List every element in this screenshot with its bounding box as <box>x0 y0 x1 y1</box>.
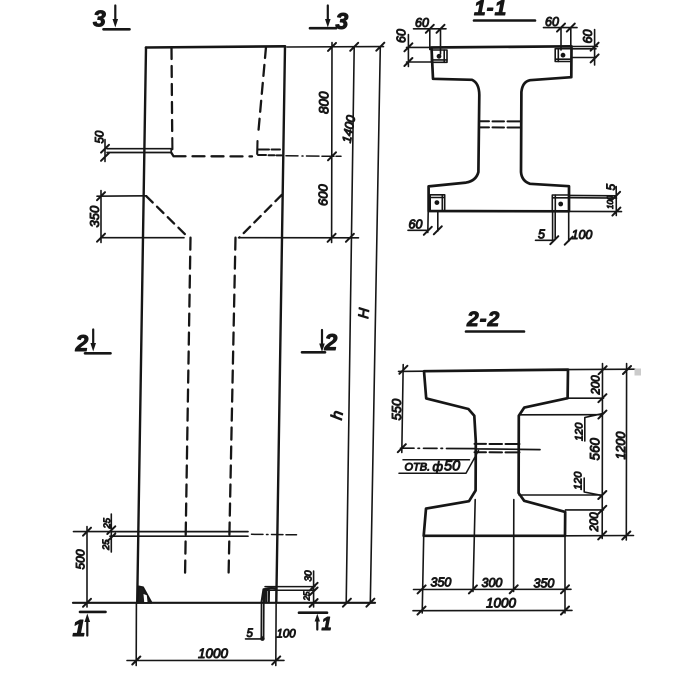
svg-text:30: 30 <box>304 570 315 582</box>
svg-text:25: 25 <box>102 517 113 529</box>
svg-text:1-1: 1-1 <box>474 0 507 20</box>
svg-text:5: 5 <box>604 184 618 191</box>
svg-text:60: 60 <box>545 15 559 29</box>
svg-text:800: 800 <box>317 91 332 114</box>
svg-text:350: 350 <box>431 576 452 590</box>
svg-text:50: 50 <box>95 130 107 143</box>
svg-text:120: 120 <box>573 471 585 490</box>
svg-text:60: 60 <box>415 16 429 30</box>
svg-text:100: 100 <box>572 228 593 242</box>
svg-text:600: 600 <box>316 184 331 206</box>
svg-text:100: 100 <box>277 629 297 641</box>
svg-text:350: 350 <box>534 577 555 591</box>
svg-text:3: 3 <box>93 6 106 32</box>
svg-text:200: 200 <box>591 375 603 396</box>
svg-text:25: 25 <box>101 539 112 551</box>
svg-text:3: 3 <box>336 8 349 34</box>
svg-text:1: 1 <box>73 615 86 641</box>
svg-text:ОТВ.: ОТВ. <box>405 462 431 474</box>
svg-text:2: 2 <box>324 329 338 355</box>
svg-text:ф: ф <box>433 460 444 474</box>
svg-text:560: 560 <box>588 437 603 460</box>
svg-text:300: 300 <box>482 576 503 590</box>
svg-text:H: H <box>356 307 373 320</box>
svg-text:60: 60 <box>409 218 423 232</box>
svg-text:1200: 1200 <box>614 432 628 460</box>
svg-text:500: 500 <box>74 549 88 569</box>
svg-text:120: 120 <box>574 422 586 441</box>
svg-text:350: 350 <box>87 205 102 227</box>
svg-text:1000: 1000 <box>198 646 229 661</box>
svg-text:60: 60 <box>395 29 409 43</box>
svg-text:h: h <box>329 409 347 421</box>
svg-text:1000: 1000 <box>486 596 517 611</box>
svg-text:25: 25 <box>303 591 312 601</box>
svg-text:1: 1 <box>322 614 332 634</box>
svg-text:100: 100 <box>606 195 615 209</box>
svg-text:5: 5 <box>247 628 254 640</box>
svg-text:5: 5 <box>538 228 545 242</box>
svg-text:550: 550 <box>389 398 404 420</box>
svg-text:200: 200 <box>589 512 601 533</box>
svg-text:60: 60 <box>581 30 595 44</box>
svg-text:2-2: 2-2 <box>466 308 500 331</box>
svg-text:50: 50 <box>444 459 460 475</box>
svg-text:1400: 1400 <box>340 114 359 144</box>
